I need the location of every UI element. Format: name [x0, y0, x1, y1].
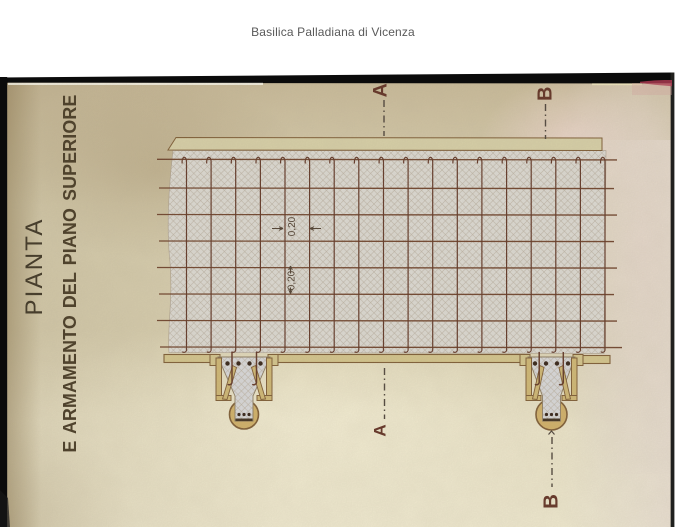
- svg-text:Basilica Palladiana di Vicenza: Basilica Palladiana di Vicenza: [251, 25, 415, 39]
